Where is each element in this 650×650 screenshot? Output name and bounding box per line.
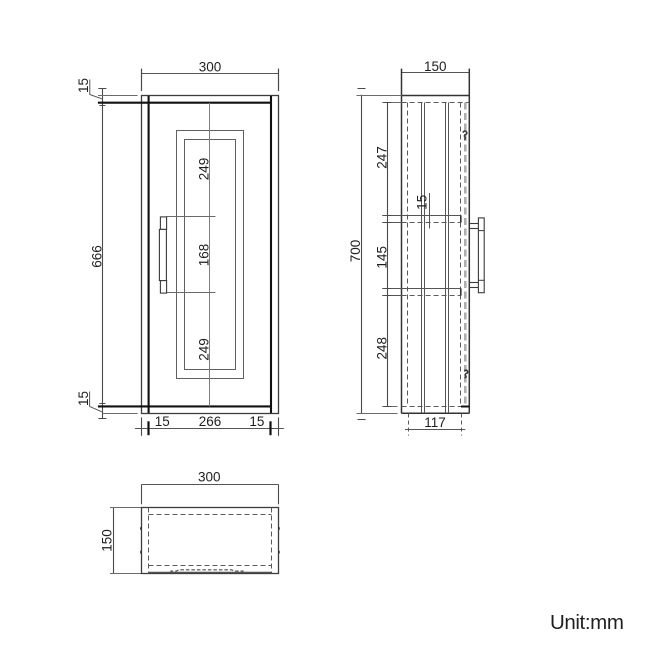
svg-text:15: 15 — [249, 414, 264, 429]
svg-text:249: 249 — [197, 338, 212, 361]
svg-text:266: 266 — [199, 414, 222, 429]
svg-text:300: 300 — [199, 60, 222, 75]
svg-text:666: 666 — [89, 245, 104, 268]
svg-text:145: 145 — [375, 246, 390, 269]
svg-text:Unit:mm: Unit:mm — [550, 611, 624, 634]
svg-text:249: 249 — [197, 158, 212, 181]
svg-text:300: 300 — [198, 470, 221, 485]
svg-text:15: 15 — [76, 78, 91, 93]
svg-text:247: 247 — [375, 146, 390, 169]
svg-text:15: 15 — [415, 195, 430, 210]
svg-text:117: 117 — [424, 415, 446, 430]
svg-text:700: 700 — [348, 240, 363, 263]
svg-text:150: 150 — [100, 529, 115, 552]
svg-text:15: 15 — [155, 414, 170, 429]
svg-text:15: 15 — [76, 391, 91, 406]
svg-text:168: 168 — [197, 244, 212, 267]
svg-text:248: 248 — [375, 337, 390, 360]
